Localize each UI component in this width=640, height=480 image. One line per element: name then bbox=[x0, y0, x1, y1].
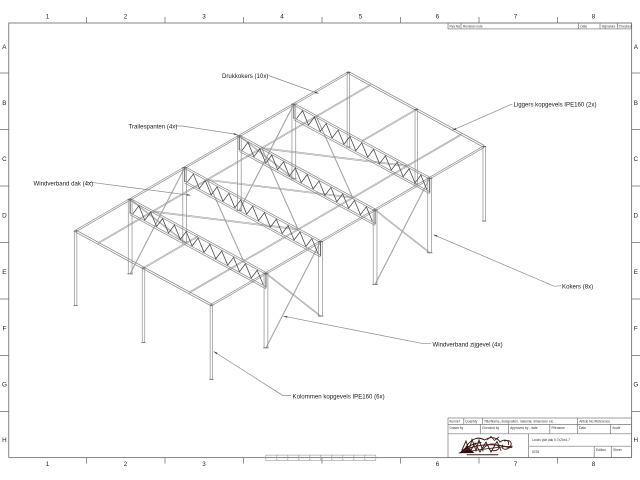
svg-text:D: D bbox=[2, 213, 7, 220]
svg-text:1: 1 bbox=[46, 461, 50, 468]
svg-text:D: D bbox=[634, 213, 639, 220]
svg-text:6: 6 bbox=[436, 461, 440, 468]
svg-text:5239: 5239 bbox=[532, 450, 539, 454]
svg-text:Drawn by: Drawn by bbox=[450, 426, 464, 430]
svg-text:Quantity: Quantity bbox=[465, 420, 477, 424]
svg-text:1: 1 bbox=[46, 14, 50, 21]
svg-text:Kokers (8x): Kokers (8x) bbox=[562, 284, 593, 291]
svg-text:Revision note: Revision note bbox=[463, 24, 483, 28]
svg-text:Date: Date bbox=[579, 426, 586, 430]
svg-text:B: B bbox=[2, 100, 6, 107]
svg-text:7: 7 bbox=[514, 14, 518, 21]
svg-text:Approved by - date: Approved by - date bbox=[510, 426, 538, 430]
svg-text:5: 5 bbox=[359, 14, 363, 21]
svg-text:Signature: Signature bbox=[602, 24, 616, 28]
svg-text:B: B bbox=[634, 100, 638, 107]
svg-text:E: E bbox=[2, 269, 6, 276]
svg-text:Kolommen kopgevels IPE160 (6x): Kolommen kopgevels IPE160 (6x) bbox=[293, 394, 385, 401]
svg-text:C: C bbox=[634, 156, 639, 163]
svg-text:Checked: Checked bbox=[619, 24, 632, 28]
svg-text:Drukkokers (10x): Drukkokers (10x) bbox=[222, 73, 268, 80]
svg-text:8: 8 bbox=[592, 461, 596, 468]
svg-text:F: F bbox=[634, 326, 638, 333]
svg-text:G: G bbox=[633, 382, 638, 389]
svg-text:2: 2 bbox=[124, 461, 128, 468]
svg-text:F: F bbox=[2, 326, 6, 333]
svg-text:Liggers kopgevels IPE160 (2x): Liggers kopgevels IPE160 (2x) bbox=[514, 102, 597, 109]
svg-text:Sheet: Sheet bbox=[613, 448, 622, 452]
svg-text:Filename: Filename bbox=[552, 426, 566, 430]
svg-text:Date: Date bbox=[580, 24, 587, 28]
svg-text:7: 7 bbox=[514, 461, 518, 468]
svg-text:6: 6 bbox=[436, 14, 440, 21]
svg-text:3: 3 bbox=[202, 14, 206, 21]
svg-text:Edition: Edition bbox=[596, 448, 606, 452]
svg-text:H: H bbox=[2, 437, 7, 444]
svg-text:8: 8 bbox=[592, 14, 596, 21]
svg-text:H: H bbox=[634, 437, 639, 444]
svg-text:E: E bbox=[634, 269, 638, 276]
svg-text:4: 4 bbox=[280, 14, 284, 21]
svg-text:Rev.No: Rev.No bbox=[450, 24, 461, 28]
svg-text:Article No./Reference: Article No./Reference bbox=[579, 420, 610, 424]
svg-text:C: C bbox=[2, 156, 7, 163]
svg-text:Title/Name, designation, mater: Title/Name, designation, material, dimen… bbox=[484, 420, 554, 424]
svg-text:Windverband zijgevel (4x): Windverband zijgevel (4x) bbox=[433, 342, 503, 349]
svg-text:2: 2 bbox=[124, 14, 128, 21]
svg-text:Checked by: Checked by bbox=[482, 426, 500, 430]
svg-text:Windverband dak (4x): Windverband dak (4x) bbox=[34, 181, 94, 188]
svg-text:Loods plat dak 9.7x20x4.7: Loods plat dak 9.7x20x4.7 bbox=[532, 438, 570, 442]
svg-text:G: G bbox=[2, 382, 7, 389]
svg-text:Trailespanten (4x): Trailespanten (4x) bbox=[129, 124, 178, 131]
svg-text:3: 3 bbox=[202, 461, 206, 468]
svg-text:Itemref: Itemref bbox=[450, 420, 460, 424]
svg-text:Scale: Scale bbox=[612, 426, 620, 430]
